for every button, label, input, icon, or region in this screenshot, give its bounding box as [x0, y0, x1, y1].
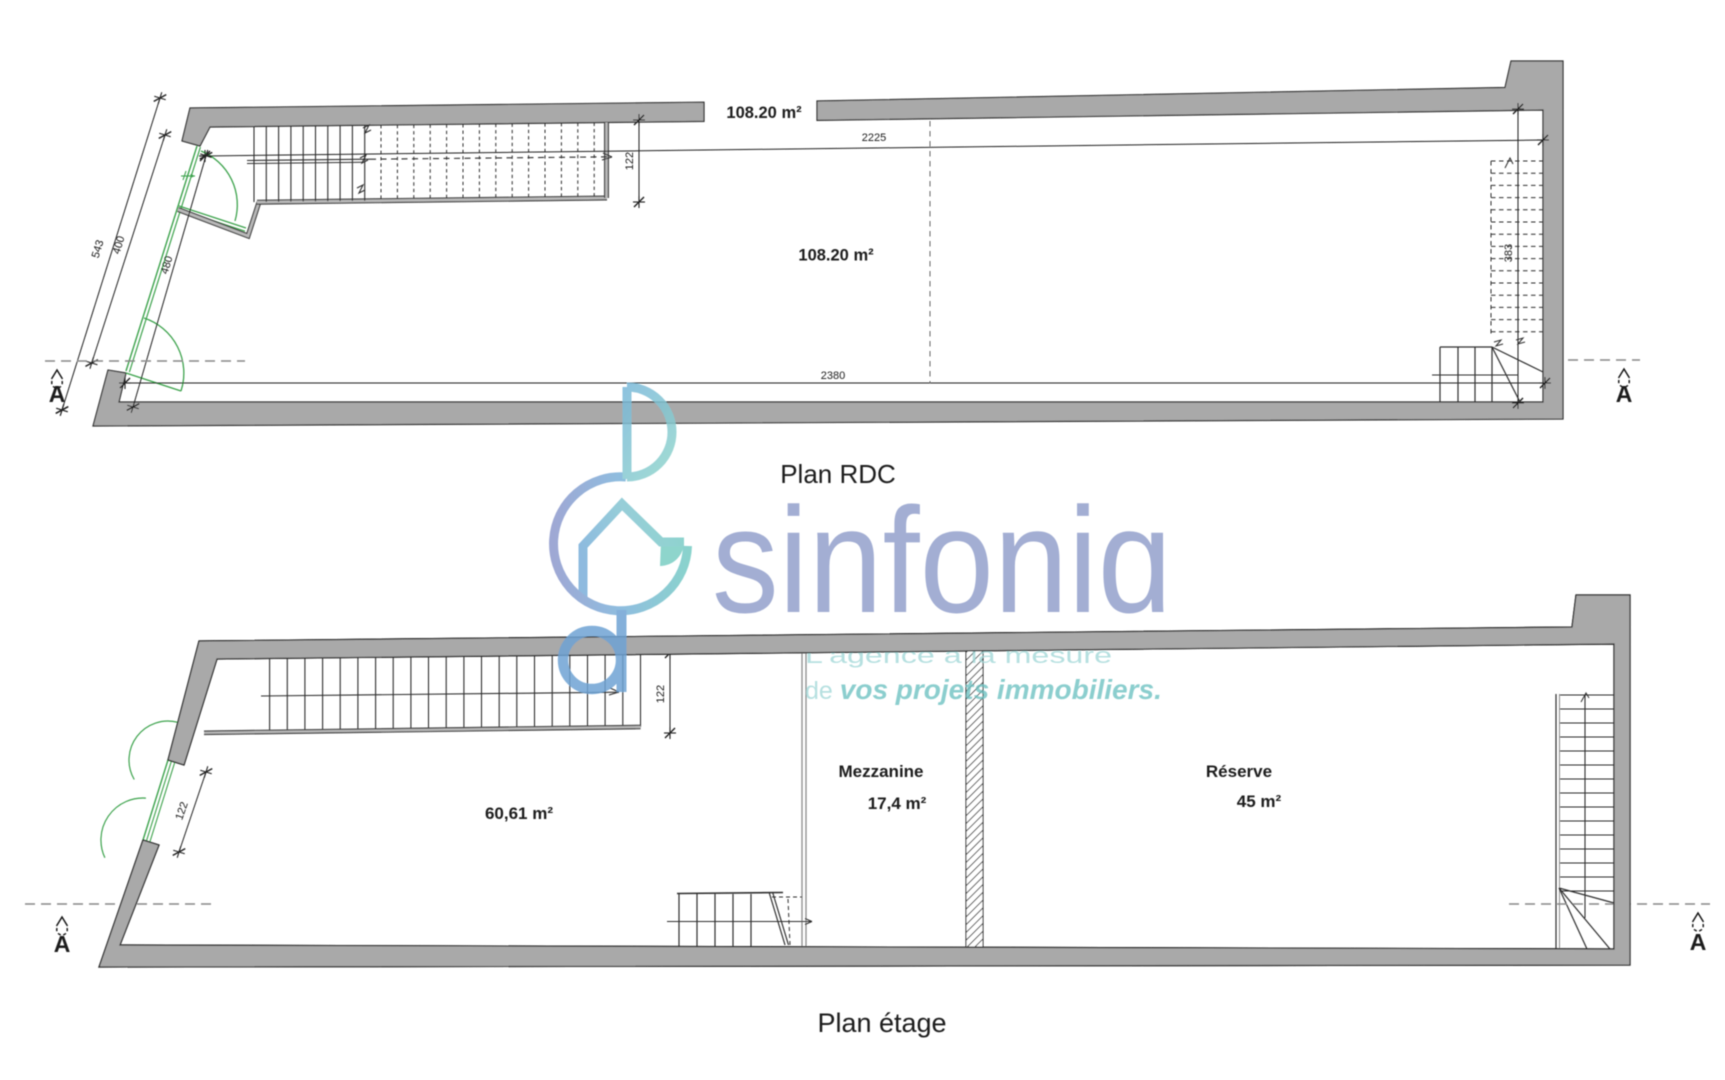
svg-text:2380: 2380 — [821, 370, 845, 382]
svg-text:543: 543 — [90, 239, 107, 260]
svg-text:A: A — [1616, 381, 1633, 407]
svg-text:400: 400 — [111, 235, 128, 256]
svg-text:2225: 2225 — [862, 132, 886, 144]
svg-text:A: A — [1690, 929, 1707, 955]
svg-text:122: 122 — [174, 800, 191, 821]
svg-text:sinfoniɑ: sinfoniɑ — [712, 476, 1172, 644]
svg-text:A: A — [54, 931, 71, 957]
svg-text:60,61 m²: 60,61 m² — [485, 804, 553, 823]
svg-text:17,4 m²: 17,4 m² — [868, 794, 927, 813]
svg-text:A: A — [49, 381, 66, 407]
svg-text:122: 122 — [624, 152, 636, 170]
svg-text:Plan étage: Plan étage — [817, 1008, 946, 1038]
svg-text:45 m²: 45 m² — [1237, 792, 1282, 811]
svg-text:Mezzanine: Mezzanine — [838, 762, 923, 781]
svg-text:108.20 m²: 108.20 m² — [726, 104, 802, 122]
svg-text:108.20 m²: 108.20 m² — [798, 247, 874, 265]
svg-text:122: 122 — [655, 685, 667, 703]
svg-text:Réserve: Réserve — [1206, 762, 1272, 781]
svg-text:de vos projets immobiliers.: de vos projets immobiliers. — [805, 674, 1162, 705]
